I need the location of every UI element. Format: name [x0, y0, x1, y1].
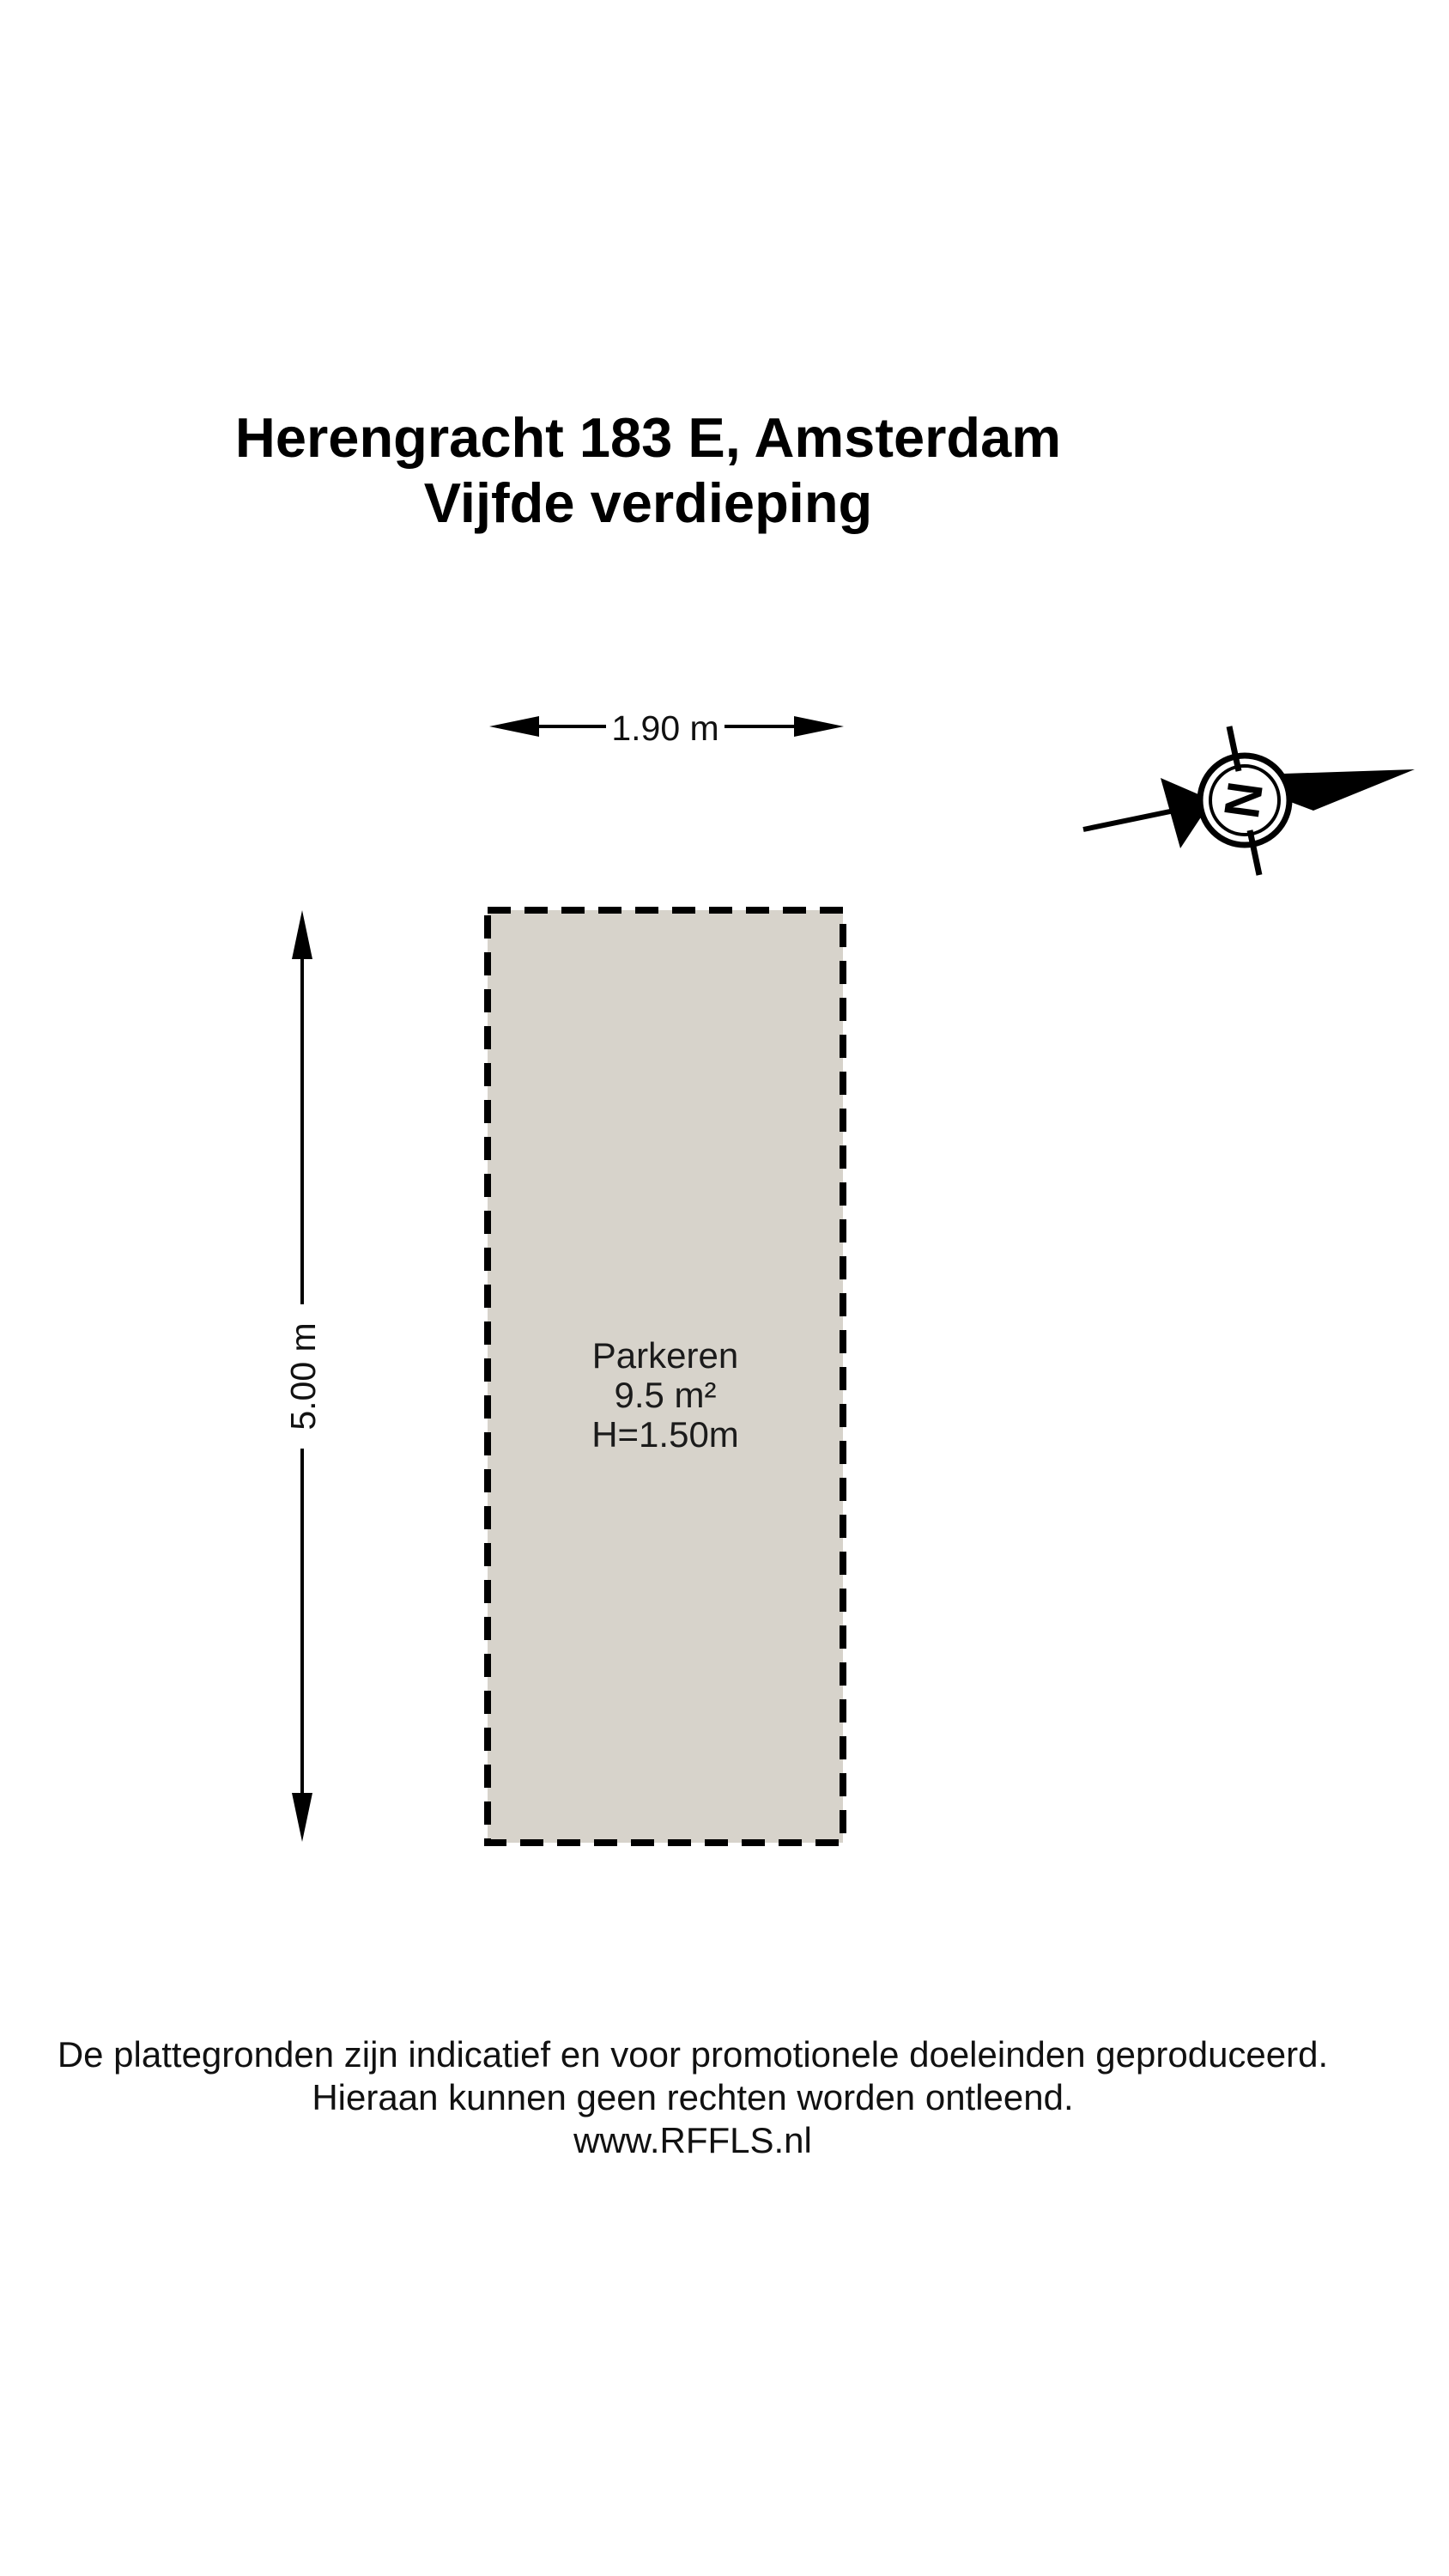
- page-title: Herengracht 183 E, Amsterdam Vijfde verd…: [0, 405, 1296, 536]
- title-address: Herengracht 183 E, Amsterdam: [0, 405, 1296, 471]
- room-area: 9.5 m²: [488, 1376, 843, 1415]
- depth-dimension: 5.00 m: [280, 903, 324, 1851]
- footer-disclaimer: De plattegronden zijn indicatief en voor…: [0, 2033, 1385, 2162]
- north-arrow-icon: N: [1077, 702, 1438, 896]
- room-label: Parkeren 9.5 m² H=1.50m: [488, 1336, 843, 1455]
- width-dimension-label: 1.90 m: [611, 708, 718, 748]
- arrow-right-icon: [794, 716, 844, 737]
- room-ceiling-height: H=1.50m: [488, 1415, 843, 1455]
- website-url: www.RFFLS.nl: [0, 2119, 1385, 2162]
- arrow-down-icon: [292, 1793, 312, 1842]
- room-name: Parkeren: [488, 1336, 843, 1376]
- title-floor: Vijfde verdieping: [0, 471, 1296, 536]
- width-dimension: 1.90 m: [477, 704, 855, 749]
- arrow-up-icon: [292, 910, 312, 959]
- floorplan-page: Herengracht 183 E, Amsterdam Vijfde verd…: [0, 0, 1449, 2576]
- arrow-left-icon: [489, 716, 539, 737]
- compass-letter: N: [1213, 778, 1273, 822]
- depth-dimension-label: 5.00 m: [283, 1322, 323, 1430]
- disclaimer-line-2: Hieraan kunnen geen rechten worden ontle…: [0, 2076, 1385, 2119]
- disclaimer-line-1: De plattegronden zijn indicatief en voor…: [0, 2033, 1385, 2076]
